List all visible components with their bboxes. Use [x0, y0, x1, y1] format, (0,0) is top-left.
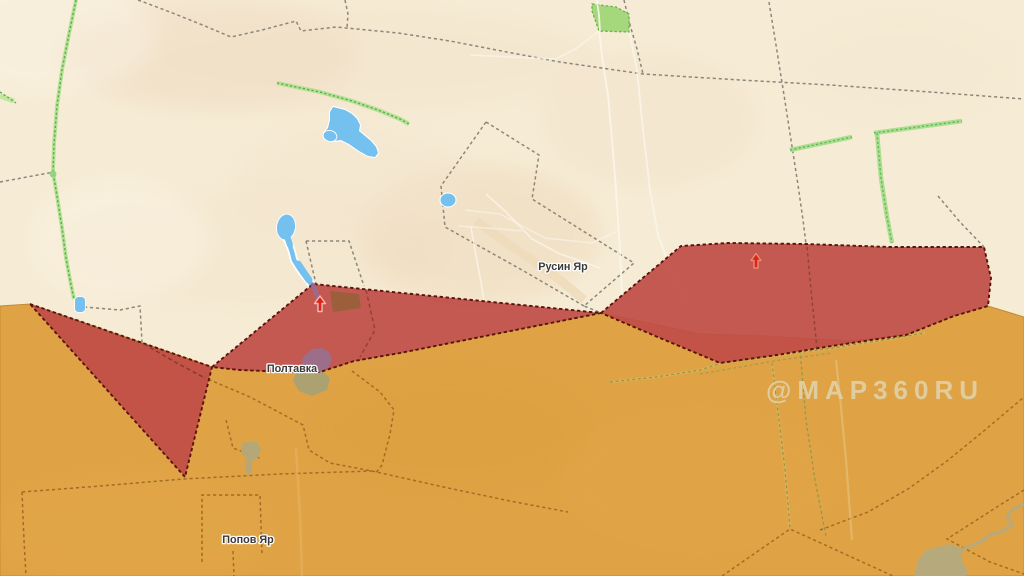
- svg-text:Попов Яр: Попов Яр: [222, 534, 274, 546]
- svg-text:Полтавка: Полтавка: [267, 363, 318, 375]
- svg-text:@MAP360RU: @MAP360RU: [766, 375, 984, 405]
- svg-text:Русин Яр: Русин Яр: [538, 261, 588, 273]
